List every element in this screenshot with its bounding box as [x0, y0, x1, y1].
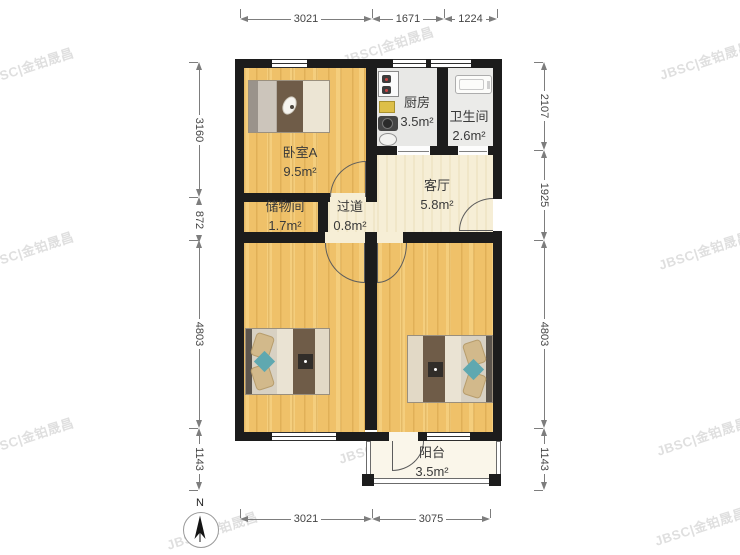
dimension-left-2: 872 — [193, 197, 205, 240]
dimension-right-2: 1925 — [538, 150, 550, 240]
room-label-hallway: 过道 0.8m² — [318, 197, 382, 235]
dim-line — [199, 145, 200, 190]
compass-icon — [183, 512, 219, 548]
bed-bedroom-bl — [245, 328, 330, 395]
room-label-bedroom-a: 卧室A 9.5m² — [258, 143, 342, 181]
dim-tick — [372, 9, 373, 18]
dim-line — [199, 474, 200, 482]
dim-line — [199, 436, 200, 444]
room-name: 客厅 — [400, 176, 474, 195]
wall-segment — [336, 432, 389, 441]
dim-arrow — [364, 16, 372, 22]
room-label-living: 客厅 5.8m² — [400, 176, 474, 214]
bed-headboard — [249, 81, 258, 132]
wall-segment — [470, 432, 502, 441]
watermark: JBSC|金铂晟昌 — [0, 42, 76, 89]
dimension-top-3: 1224 — [444, 13, 497, 25]
dimension-label: 3021 — [291, 513, 321, 525]
dim-arrow — [436, 16, 444, 22]
dim-tick — [240, 9, 241, 18]
dimension-label: 1143 — [532, 444, 556, 474]
bed-tray-dot — [434, 368, 437, 371]
bed-bedroom-a — [248, 80, 330, 133]
dim-arrow — [541, 428, 547, 436]
dim-tick — [372, 509, 373, 518]
dimension-top-2: 1671 — [372, 13, 444, 25]
north-label: N — [183, 497, 217, 510]
dim-arrow — [541, 482, 547, 490]
dim-arrow — [541, 420, 547, 428]
dim-line — [446, 519, 482, 520]
dim-arrow — [372, 16, 380, 22]
dim-tick — [534, 428, 543, 429]
dim-arrow — [196, 240, 202, 248]
dim-line — [544, 474, 545, 482]
room-name: 卫生间 — [432, 107, 506, 126]
dimension-label: 4803 — [187, 319, 211, 349]
bathtub-faucet — [487, 81, 490, 89]
dimension-label: 3021 — [291, 13, 321, 25]
north-needle-icon — [184, 513, 216, 545]
dim-line — [544, 436, 545, 444]
dim-arrow — [196, 420, 202, 428]
dimension-top-1: 3021 — [240, 13, 372, 25]
bathtub-basin — [459, 79, 484, 90]
room-label-balcony: 阳台 3.5m² — [395, 443, 469, 481]
dim-tick — [444, 9, 445, 18]
dim-tick — [240, 509, 241, 518]
balcony-doorway — [389, 432, 418, 441]
dimension-right-1: 2107 — [538, 62, 550, 150]
dim-arrow — [541, 62, 547, 70]
room-area: 2.6m² — [432, 126, 506, 145]
burner-dot — [385, 89, 388, 92]
room-name: 阳台 — [395, 443, 469, 462]
balcony-post — [362, 474, 374, 486]
room-name: 过道 — [318, 197, 382, 216]
bed-cushion-dot — [290, 105, 294, 109]
watermark: JBSC|金铂晟昌 — [654, 412, 740, 459]
dim-arrow — [196, 197, 202, 205]
wall-segment — [365, 243, 377, 430]
balcony-post — [489, 474, 501, 486]
dim-line — [423, 19, 436, 20]
wall-segment — [235, 432, 272, 441]
wall-segment — [403, 232, 493, 243]
dim-tick — [189, 62, 198, 63]
room-area: 3.5m² — [395, 462, 469, 481]
watermark: JBSC|金铂晟昌 — [0, 226, 76, 273]
wall-segment — [235, 59, 244, 441]
bathroom-doorway — [458, 146, 488, 155]
dim-tick — [490, 509, 491, 518]
dimension-bottom-1: 3021 — [240, 513, 372, 525]
dimension-right-4: 1143 — [538, 428, 550, 490]
dim-arrow — [240, 16, 248, 22]
bed-bedroom-br — [407, 335, 493, 403]
dim-tick — [189, 428, 198, 429]
dimension-label: 1925 — [532, 180, 556, 210]
wall-segment — [493, 231, 502, 441]
bed-pillow-zone — [258, 81, 277, 132]
bathtub — [455, 75, 492, 94]
wall-segment — [366, 68, 377, 202]
bed-headboard — [486, 336, 492, 402]
pot — [379, 133, 397, 146]
watermark: JBSC|金铂晟昌 — [657, 36, 740, 83]
dim-arrow — [541, 232, 547, 240]
room-label-storage: 储物间 1.7m² — [243, 197, 327, 235]
room-area: 5.8m² — [400, 195, 474, 214]
dimension-label: 3160 — [187, 115, 211, 145]
dim-tick — [189, 240, 198, 241]
dimension-label: 1671 — [393, 13, 423, 25]
burner-dot — [385, 78, 388, 81]
dim-tick — [534, 240, 543, 241]
bed-tray-dot — [304, 360, 307, 363]
dim-arrow — [364, 516, 372, 522]
room-label-bathroom: 卫生间 2.6m² — [432, 107, 506, 145]
dim-line — [380, 519, 416, 520]
entrance-doorway — [493, 199, 502, 231]
kitchen-doorway — [397, 146, 430, 155]
dim-line — [199, 349, 200, 420]
window — [431, 59, 471, 68]
wall-segment — [418, 432, 427, 441]
bed-blanket — [445, 336, 461, 402]
window — [272, 59, 307, 68]
window — [393, 59, 426, 68]
room-area: 1.7m² — [243, 216, 327, 235]
room-name: 卧室A — [258, 143, 342, 162]
dim-arrow — [489, 16, 497, 22]
room-area: 9.5m² — [258, 162, 342, 181]
dimension-label: 2107 — [532, 91, 556, 121]
window — [272, 432, 336, 441]
watermark: JBSC|金铂晟昌 — [656, 226, 740, 273]
bed-blanket — [315, 329, 329, 394]
bed-blanket — [277, 329, 293, 394]
dim-tick — [534, 150, 543, 151]
dimension-left-1: 3160 — [193, 62, 205, 197]
dim-arrow — [372, 516, 380, 522]
watermark: JBSC|金铂晟昌 — [652, 502, 740, 549]
dim-arrow — [196, 482, 202, 490]
dim-line — [199, 70, 200, 115]
dim-line — [544, 158, 545, 180]
window — [427, 432, 470, 441]
dimension-label: 4803 — [532, 319, 556, 349]
dim-line — [321, 519, 364, 520]
dimension-label: 3075 — [416, 513, 446, 525]
dim-line — [248, 19, 291, 20]
dim-line — [544, 70, 545, 91]
dimension-label: 872 — [190, 205, 208, 235]
dim-line — [199, 248, 200, 319]
dimension-label: 1143 — [187, 444, 211, 474]
dim-arrow — [196, 428, 202, 436]
dimension-right-3: 4803 — [538, 240, 550, 428]
dim-arrow — [240, 516, 248, 522]
dim-line — [248, 519, 291, 520]
watermark: JBSC|金铂晟昌 — [0, 412, 76, 459]
dim-line — [380, 19, 393, 20]
dimension-left-3: 4803 — [193, 240, 205, 428]
dimension-bottom-2: 3075 — [372, 513, 490, 525]
dim-line — [544, 210, 545, 232]
dim-tick — [534, 490, 543, 491]
dim-line — [544, 349, 545, 420]
dim-line — [321, 19, 364, 20]
floor-plan: JBSC|金铂晟昌 JBSC|金铂晟昌 JBSC|金铂晟昌 JBSC|金铂晟昌 … — [0, 0, 740, 555]
dim-arrow — [196, 62, 202, 70]
dim-tick — [189, 490, 198, 491]
dim-arrow — [482, 516, 490, 522]
room-name: 储物间 — [243, 197, 327, 216]
dimension-left-4: 1143 — [193, 428, 205, 490]
dim-arrow — [196, 189, 202, 197]
dimension-label: 1224 — [455, 13, 485, 25]
dim-arrow — [444, 16, 452, 22]
room-area: 0.8m² — [318, 216, 382, 235]
dim-tick — [189, 197, 198, 198]
dim-line — [544, 121, 545, 142]
dim-line — [544, 248, 545, 319]
dim-arrow — [541, 142, 547, 150]
dim-tick — [534, 62, 543, 63]
dim-arrow — [541, 150, 547, 158]
bed-blanket — [408, 336, 423, 402]
dim-tick — [497, 9, 498, 18]
dim-arrow — [541, 240, 547, 248]
